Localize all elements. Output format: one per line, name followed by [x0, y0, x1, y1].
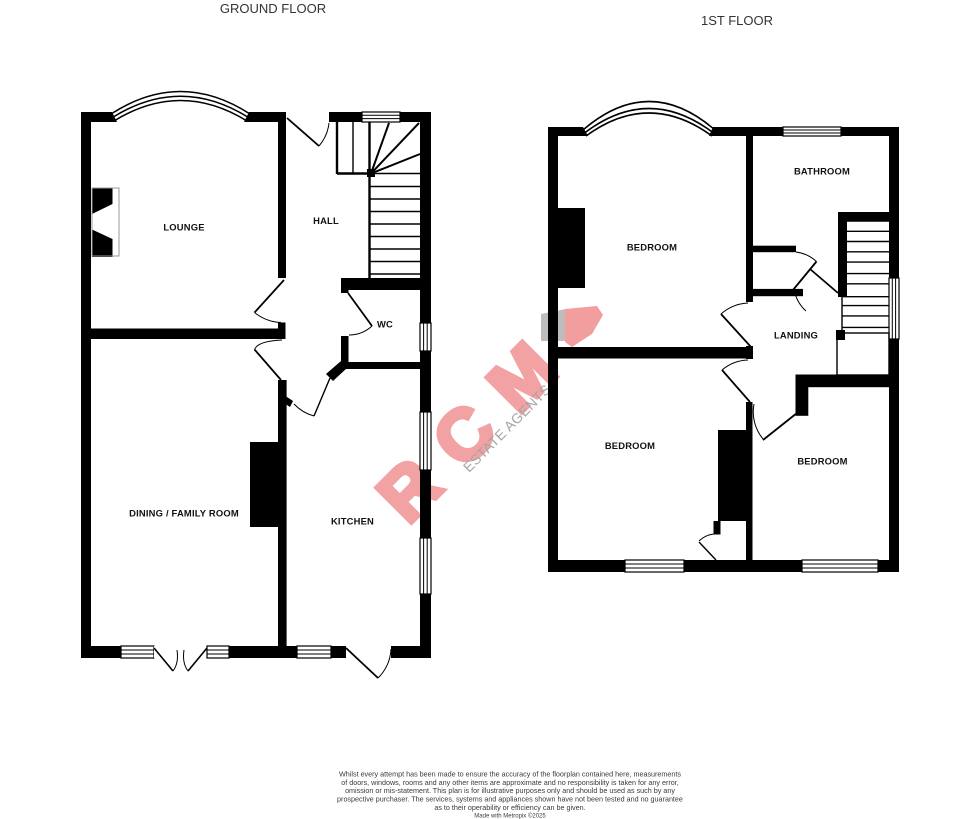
- svg-text:HALL: HALL: [313, 215, 339, 226]
- svg-text:WC: WC: [377, 319, 393, 330]
- svg-text:Made with Metropix ©2025: Made with Metropix ©2025: [474, 813, 546, 819]
- svg-text:1ST FLOOR: 1ST FLOOR: [701, 13, 773, 28]
- svg-text:BEDROOM: BEDROOM: [797, 456, 847, 467]
- svg-text:DINING / FAMILY ROOM: DINING / FAMILY ROOM: [129, 508, 239, 519]
- svg-text:BEDROOM: BEDROOM: [627, 242, 677, 253]
- svg-text:LOUNGE: LOUNGE: [163, 222, 204, 233]
- svg-text:as to their operability or eff: as to their operability or efficiency ca…: [434, 803, 585, 812]
- svg-text:LANDING: LANDING: [774, 330, 818, 341]
- svg-text:GROUND FLOOR: GROUND FLOOR: [220, 1, 326, 16]
- svg-text:KITCHEN: KITCHEN: [331, 516, 374, 527]
- svg-text:BEDROOM: BEDROOM: [605, 440, 655, 451]
- svg-text:BATHROOM: BATHROOM: [794, 166, 850, 177]
